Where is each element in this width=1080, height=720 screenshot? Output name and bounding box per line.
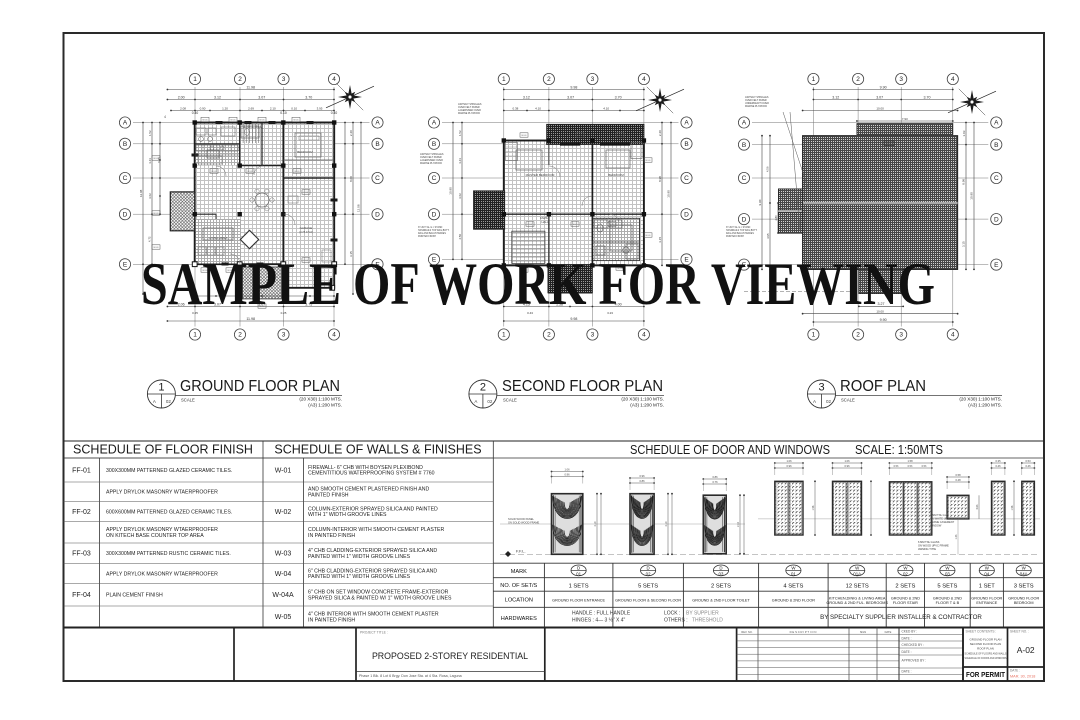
svg-text:600X600MM PATTERNED GLAZED CER: 600X600MM PATTERNED GLAZED CERAMIC TILES… [106, 509, 232, 515]
svg-text:C: C [994, 175, 999, 182]
svg-text:3 SETS: 3 SETS [1014, 584, 1034, 590]
svg-text:FOR PERMIT: FOR PERMIT [966, 670, 1006, 679]
svg-text:3.43: 3.43 [148, 158, 152, 164]
svg-text:3: 3 [282, 332, 286, 339]
svg-text:A: A [994, 120, 999, 127]
svg-text:ROOF PLAN: ROOF PLAN [977, 647, 994, 651]
svg-text:DATE :: DATE : [902, 637, 912, 641]
svg-text:W-01: W-01 [153, 213, 159, 215]
svg-text:HALL: HALL [542, 220, 549, 224]
svg-text:1: 1 [193, 76, 197, 83]
svg-text:03: 03 [719, 571, 724, 576]
svg-text:10.90: 10.90 [449, 187, 453, 195]
svg-text:D E S C R I P T I O N: D E S C R I P T I O N [790, 630, 817, 634]
svg-text:D: D [719, 565, 722, 570]
svg-text:LIVING AREA: LIVING AREA [209, 236, 228, 240]
svg-text:4.50: 4.50 [458, 234, 462, 240]
svg-text:C: C [123, 175, 128, 182]
svg-text:(20 X30) 1:100 MTS.: (20 X30) 1:100 MTS. [621, 397, 664, 402]
svg-text:3: 3 [899, 76, 903, 83]
svg-text:1: 1 [502, 332, 506, 339]
svg-text:GROUND FLOOR & SECOND FLOOR: GROUND FLOOR & SECOND FLOOR [615, 598, 681, 602]
svg-text:A: A [474, 399, 477, 404]
svg-text:D: D [684, 211, 689, 218]
svg-text:1: 1 [502, 76, 506, 83]
svg-text:LOCK :: LOCK : [664, 611, 680, 617]
svg-text:2: 2 [238, 332, 242, 339]
svg-text:RAIL AND BALUSTRADES: RAIL AND BALUSTRADES [726, 232, 754, 235]
svg-text:FF-02: FF-02 [72, 509, 91, 516]
svg-text:0.86: 0.86 [712, 475, 718, 479]
svg-text:GROUND & 2ND FUL. BEDROOMS: GROUND & 2ND FUL. BEDROOMS [826, 601, 888, 605]
svg-text:NO. OF SET/S: NO. OF SET/S [500, 583, 537, 589]
svg-text:3: 3 [818, 382, 824, 394]
svg-text:4: 4 [164, 115, 166, 119]
svg-text:RAIL AND BALUSTRADES: RAIL AND BALUSTRADES [418, 232, 446, 235]
svg-text:HANDRAILS TOP RAIL,BOTT.: HANDRAILS TOP RAIL,BOTT. [726, 229, 758, 232]
svg-text:2.08: 2.08 [180, 106, 186, 110]
svg-text:W-01: W-01 [211, 171, 217, 173]
svg-text:PAINTED FINISH: PAINTED FINISH [726, 235, 744, 238]
svg-text:GARAGE: GARAGE [300, 226, 313, 230]
svg-text:A: A [123, 120, 128, 127]
svg-text:9.98: 9.98 [570, 85, 577, 89]
svg-text:12 SETS: 12 SETS [846, 584, 869, 590]
svg-text:GROUND & 2ND: GROUND & 2ND [933, 596, 962, 600]
svg-text:(20 X30) 1:100 MTS.: (20 X30) 1:100 MTS. [959, 397, 1002, 402]
svg-text:GROUND & 2ND: GROUND & 2ND [891, 596, 920, 600]
svg-text:4.10: 4.10 [603, 106, 609, 110]
svg-text:6 MM TNL GLASS: 6 MM TNL GLASS [918, 540, 940, 544]
svg-text:4.72: 4.72 [148, 236, 152, 242]
svg-text:3Y 2M T.AL G.I. STAND: 3Y 2M T.AL G.I. STAND [418, 226, 443, 229]
svg-text:DATE: DATE [885, 630, 892, 634]
svg-text:B: B [994, 142, 998, 149]
svg-text:4.95: 4.95 [766, 233, 770, 239]
svg-text:02: 02 [646, 571, 651, 576]
svg-text:IN PAINTED FINISH: IN PAINTED FINISH [308, 533, 355, 539]
svg-text:1.52: 1.52 [458, 130, 462, 136]
svg-text:1.58: 1.58 [907, 459, 913, 463]
svg-text:01: 01 [576, 571, 581, 576]
svg-text:DATE :: DATE : [1010, 669, 1020, 673]
svg-text:SCALE: SCALE [503, 398, 517, 403]
svg-text:3.95: 3.95 [317, 106, 323, 110]
svg-text:0.35: 0.35 [995, 459, 1001, 463]
svg-text:1 SET: 1 SET [979, 584, 996, 590]
svg-text:1.06: 1.06 [564, 468, 570, 472]
svg-text:BEDROOM: BEDROOM [1014, 601, 1034, 605]
svg-text:CHECKED BY :: CHECKED BY : [902, 643, 925, 647]
svg-text:AWNING TYPE: AWNING TYPE [918, 547, 936, 551]
svg-text:HINGES : 4— 3 ½" X 4": HINGES : 4— 3 ½" X 4" [572, 617, 626, 624]
svg-text:SCHEDULE OF FLOOR FINISH: SCHEDULE OF FLOOR FINISH [73, 443, 253, 457]
svg-text:D: D [432, 211, 437, 218]
svg-text:W-01: W-01 [617, 135, 623, 137]
svg-text:ENTRANCE: ENTRANCE [976, 601, 997, 605]
svg-text:FLOOR STAIR: FLOOR STAIR [893, 601, 918, 605]
svg-text:MAR. 30, 2018: MAR. 30, 2018 [1010, 675, 1035, 679]
svg-text:A: A [813, 399, 816, 404]
svg-text:2.10: 2.10 [665, 521, 668, 526]
svg-text:9.90: 9.90 [880, 85, 887, 89]
svg-text:W-01: W-01 [202, 120, 208, 122]
svg-text:3.12: 3.12 [523, 95, 530, 99]
svg-text:8.98: 8.98 [658, 176, 662, 182]
svg-text:300X300MM PATTERNED GLAZED CER: 300X300MM PATTERNED GLAZED CERAMIC TILES… [106, 468, 232, 474]
svg-text:W-01: W-01 [645, 160, 651, 162]
svg-text:3Y 2M T.AL G.I. STAND: 3Y 2M T.AL G.I. STAND [726, 226, 751, 229]
svg-text:1.06: 1.06 [844, 459, 850, 463]
svg-text:4.10: 4.10 [535, 106, 541, 110]
svg-text:SOLID WOOD PANEL: SOLID WOOD PANEL [508, 517, 534, 521]
svg-text:04: 04 [984, 571, 989, 576]
svg-text:9.90: 9.90 [880, 318, 887, 322]
svg-text:D: D [123, 211, 128, 218]
svg-text:01A: 01A [853, 571, 861, 576]
svg-text:W-01: W-01 [293, 120, 299, 122]
svg-text:W-01: W-01 [303, 192, 309, 194]
svg-text:D: D [994, 216, 999, 223]
svg-text:3.43: 3.43 [458, 158, 462, 164]
svg-text:OTHERS :: OTHERS : [664, 618, 688, 624]
svg-text:FLOOR T & B: FLOOR T & B [936, 601, 960, 605]
svg-text:4 SETS: 4 SETS [783, 584, 803, 590]
svg-text:0.46: 0.46 [1025, 464, 1031, 468]
svg-text:2.69: 2.69 [248, 106, 254, 110]
svg-text:APPLY DRYLOK MASONRY WTAERPROO: APPLY DRYLOK MASONRY WTAERPROOFER [106, 490, 218, 496]
svg-text:GROUND FLOOR: GROUND FLOOR [971, 596, 1002, 600]
svg-text:0.96: 0.96 [564, 473, 570, 477]
svg-text:0.96: 0.96 [639, 474, 645, 478]
svg-text:A: A [432, 120, 437, 127]
svg-text:HANDRAILS TOP RAIL,BOTT.: HANDRAILS TOP RAIL,BOTT. [418, 229, 450, 232]
svg-text:1.06: 1.06 [786, 459, 792, 463]
svg-text:W-01: W-01 [527, 224, 533, 226]
svg-text:4: 4 [642, 76, 646, 83]
svg-text:LOCATION: LOCATION [505, 598, 533, 604]
svg-text:SAMPLE OF WORK FOR VIEWING: SAMPLE OF WORK FOR VIEWING [141, 251, 935, 317]
svg-text:GROUND FLOOR PLAN: GROUND FLOOR PLAN [970, 638, 1002, 642]
svg-text:SCALE: 1:50MTS: SCALE: 1:50MTS [855, 443, 943, 457]
svg-text:8.00: 8.00 [349, 176, 353, 182]
svg-text:2: 2 [547, 76, 551, 83]
svg-text:W-01: W-01 [230, 120, 236, 122]
svg-text:(2.75 X 5.0): (2.75 X 5.0) [299, 230, 313, 234]
svg-text:D: D [375, 211, 380, 218]
svg-text:0.53: 0.53 [908, 465, 913, 468]
svg-text:GROUND & 2ND FLOOR: GROUND & 2ND FLOOR [772, 598, 816, 602]
svg-text:3.07: 3.07 [567, 95, 574, 99]
svg-text:3: 3 [591, 76, 595, 83]
svg-text:C: C [432, 175, 437, 182]
svg-text:2 SETS: 2 SETS [711, 584, 731, 590]
svg-text:2.10: 2.10 [270, 106, 276, 110]
svg-text:HANDLE : FULL HANDLE: HANDLE : FULL HANDLE [572, 611, 631, 617]
svg-text:3.15: 3.15 [962, 241, 966, 247]
svg-text:ON SOLID WOOD FRAME: ON SOLID WOOD FRAME [508, 521, 540, 525]
svg-text:E: E [123, 262, 128, 269]
svg-text:FF-03: FF-03 [72, 551, 91, 558]
svg-text:3.15: 3.15 [658, 237, 662, 243]
svg-text:F.F.L.: F.F.L. [516, 549, 526, 554]
svg-text:0.53: 0.53 [894, 465, 899, 468]
svg-text:10.00: 10.00 [876, 106, 884, 110]
svg-text:(A3) 1:200 MTS.: (A3) 1:200 MTS. [968, 403, 1002, 408]
svg-text:GROUND & 2ND FLOOR TOILET: GROUND & 2ND FLOOR TOILET [692, 598, 750, 602]
svg-text:B: B [432, 141, 436, 148]
svg-text:FF-01: FF-01 [72, 467, 91, 474]
svg-text:W-03: W-03 [275, 551, 292, 558]
svg-text:4.56: 4.56 [766, 166, 770, 172]
svg-text:5 SETS: 5 SETS [937, 584, 957, 590]
svg-text:D: D [742, 216, 747, 223]
svg-text:W-01: W-01 [572, 224, 578, 226]
svg-text:04A: 04A [1020, 571, 1028, 576]
svg-text:0.40: 0.40 [192, 111, 199, 115]
svg-text:3.62: 3.62 [148, 193, 152, 199]
svg-text:SCHEDULE OF WALLS & FINISHES: SCHEDULE OF WALLS & FINISHES [274, 443, 481, 457]
svg-text:3.12: 3.12 [214, 95, 221, 99]
svg-text:PAINTED WITH 1" WIDTH GROOVE: PAINTED WITH 1" WIDTH GROOVE LINES [308, 574, 411, 580]
svg-text:PAINTED FINISH: PAINTED FINISH [418, 235, 436, 238]
svg-text:01: 01 [791, 571, 796, 576]
svg-text:3.07: 3.07 [876, 95, 883, 99]
svg-text:10.90: 10.90 [667, 190, 671, 198]
svg-text:2: 2 [856, 76, 860, 83]
svg-text:2.10: 2.10 [737, 522, 740, 527]
svg-text:3.07: 3.07 [258, 95, 265, 99]
svg-text:0.96: 0.96 [844, 464, 850, 468]
svg-text:CKED BY :: CKED BY : [902, 630, 918, 634]
svg-text:0.10: 0.10 [291, 106, 297, 110]
svg-text:1.20: 1.20 [222, 106, 228, 110]
svg-text:0.63: 0.63 [976, 504, 979, 509]
svg-text:02: 02 [903, 571, 908, 576]
svg-text:SECOND FLOOR PLAN: SECOND FLOOR PLAN [502, 378, 663, 395]
svg-text:4: 4 [332, 76, 336, 83]
svg-text:8.98: 8.98 [962, 179, 966, 185]
svg-text:(A3) 1:200 MTS.: (A3) 1:200 MTS. [308, 403, 342, 408]
svg-text:1: 1 [193, 332, 197, 339]
svg-text:W-01: W-01 [153, 247, 159, 249]
svg-text:10.90: 10.90 [970, 192, 974, 200]
svg-text:W-05: W-05 [275, 614, 292, 621]
svg-text:0.10: 0.10 [280, 111, 287, 115]
svg-text:C: C [375, 175, 380, 182]
svg-text:1: 1 [158, 382, 164, 394]
svg-text:FF-04: FF-04 [72, 592, 91, 599]
svg-text:E: E [994, 262, 999, 269]
svg-text:2.10: 2.10 [594, 521, 597, 526]
svg-text:0.40: 0.40 [331, 111, 338, 115]
svg-text:W-01: W-01 [294, 171, 300, 173]
svg-text:GROUND FLOOR PLAN: GROUND FLOOR PLAN [180, 378, 340, 395]
svg-text:IN PAINTED FINISH: IN PAINTED FINISH [308, 617, 355, 623]
svg-text:4: 4 [951, 76, 955, 83]
svg-text:A: A [742, 120, 747, 127]
svg-text:11.98: 11.98 [246, 317, 255, 321]
svg-text:2: 2 [856, 332, 860, 339]
svg-text:(20 X30) 1:100 MTS.: (20 X30) 1:100 MTS. [299, 397, 342, 402]
svg-text:B: B [742, 142, 746, 149]
svg-text:W-04A: W-04A [272, 592, 294, 599]
svg-text:9.98: 9.98 [570, 317, 577, 321]
svg-text:SPRAYED SILICA & PAINTED W/ 1: SPRAYED SILICA & PAINTED W/ 1" WIDTH GRO… [308, 595, 452, 601]
svg-text:(A3) 1:200 MTS.: (A3) 1:200 MTS. [630, 403, 664, 408]
svg-text:PROJECT TITLE :: PROJECT TITLE : [360, 631, 388, 635]
svg-text:W-01: W-01 [577, 135, 583, 137]
svg-text:DATE :: DATE : [902, 650, 912, 654]
svg-text:W-01: W-01 [645, 235, 651, 237]
svg-text:W-01: W-01 [609, 224, 615, 226]
svg-text:SHEET NO. :: SHEET NO. : [1010, 630, 1029, 634]
svg-text:SCHEDULE OF FLOORS AND WALLS: SCHEDULE OF FLOORS AND WALLS [965, 651, 1007, 655]
svg-text:12.08: 12.08 [357, 204, 361, 212]
svg-text:ROOF PLAN: ROOF PLAN [840, 378, 926, 395]
svg-text:SCHEDULE OF DOORS AND WINDOWS: SCHEDULE OF DOORS AND WINDOWS [965, 656, 1007, 660]
svg-text:0.58: 0.58 [955, 473, 961, 477]
svg-text:MARINE PLYWOOD: MARINE PLYWOOD [745, 105, 767, 108]
svg-text:0.96: 0.96 [786, 464, 792, 468]
svg-text:300X300MM PATTERNED RUSTIC CER: 300X300MM PATTERNED RUSTIC CERAMIC TILES… [106, 551, 231, 557]
svg-text:2.80: 2.80 [774, 215, 778, 221]
svg-text:3.70: 3.70 [615, 95, 622, 99]
svg-text:0.90: 0.90 [200, 106, 206, 110]
svg-text:3.70: 3.70 [305, 95, 312, 99]
svg-text:2 SETS: 2 SETS [895, 584, 915, 590]
svg-text:GROUND FLOOR: GROUND FLOOR [1008, 596, 1039, 600]
svg-text:D: D [577, 565, 580, 570]
svg-text:SCHEDULE OF DOOR AND WINDOWS: SCHEDULE OF DOOR AND WINDOWS [630, 443, 830, 457]
svg-text:02: 02 [166, 399, 172, 404]
svg-text:MASTER BEDROOM: MASTER BEDROOM [526, 173, 555, 177]
svg-text:BEDROOM: BEDROOM [608, 173, 624, 177]
svg-text:3: 3 [282, 76, 286, 83]
svg-text:W-02: W-02 [275, 509, 292, 516]
svg-text:3.70: 3.70 [924, 95, 931, 99]
svg-text:ON KITECH BASE COUNTER TOP ARE: ON KITECH BASE COUNTER TOP AREA [106, 533, 204, 539]
svg-text:MARK: MARK [511, 569, 527, 575]
svg-text:7.93: 7.93 [902, 117, 908, 121]
svg-text:PROPOSED 2-STOREY RESIDENTIAL: PROPOSED 2-STOREY RESIDENTIAL [372, 651, 528, 661]
svg-text:2: 2 [480, 382, 486, 394]
svg-text:THRESHOLD: THRESHOLD [692, 618, 723, 624]
svg-text:A-02: A-02 [1017, 645, 1035, 655]
svg-text:C: C [684, 175, 689, 182]
svg-text:W-01: W-01 [259, 120, 265, 122]
svg-text:ON WOOD UPVC FRAME: ON WOOD UPVC FRAME [918, 544, 949, 548]
svg-text:11.98: 11.98 [246, 85, 255, 89]
svg-text:B: B [123, 141, 127, 148]
svg-text:FRAME CASEMENT: FRAME CASEMENT [930, 520, 955, 524]
svg-text:02: 02 [487, 399, 493, 404]
svg-text:2.00: 2.00 [178, 95, 185, 99]
svg-text:SIGN: SIGN [860, 630, 866, 634]
svg-text:DATE :: DATE : [902, 670, 912, 674]
svg-text:9.90: 9.90 [758, 199, 762, 205]
svg-text:2: 2 [547, 332, 551, 339]
svg-text:WITH 1" WIDTH GROOVE LINES: WITH 1" WIDTH GROOVE LINES [308, 512, 387, 518]
svg-text:2: 2 [238, 76, 242, 83]
svg-text:A: A [375, 120, 380, 127]
svg-text:0.86: 0.86 [639, 479, 645, 483]
svg-text:KITCHEN,DINIG & LIVING AREA: KITCHEN,DINIG & LIVING AREA [829, 596, 886, 600]
svg-text:W-01: W-01 [247, 171, 253, 173]
svg-text:3.12: 3.12 [832, 95, 839, 99]
svg-text:4: 4 [642, 332, 646, 339]
svg-text:BY SPECIALTY SUPPLIER INSTALLE: BY SPECIALTY SUPPLIER INSTALLER & CONTRA… [820, 614, 982, 621]
svg-text:APPLY DRYLOK MASONRY WTAERPROO: APPLY DRYLOK MASONRY WTAERPROOFER [106, 571, 218, 577]
svg-text:C: C [742, 175, 747, 182]
svg-text:1.33: 1.33 [955, 534, 958, 539]
svg-text:1: 1 [812, 76, 816, 83]
svg-text:2.40: 2.40 [658, 130, 662, 136]
svg-text:1.58: 1.58 [812, 505, 815, 510]
svg-text:03: 03 [945, 571, 950, 576]
svg-text:W-01: W-01 [521, 135, 527, 137]
svg-text:02: 02 [826, 399, 832, 404]
svg-text:3.62: 3.62 [458, 193, 462, 199]
svg-text:SCALE: SCALE [841, 398, 855, 403]
svg-text:SHEET CONTENTS :: SHEET CONTENTS : [966, 630, 997, 634]
svg-text:HARDWARES: HARDWARES [501, 616, 537, 622]
svg-text:B: B [684, 141, 688, 148]
svg-text:12.08: 12.08 [139, 189, 143, 197]
svg-text:PAINTED WITH 1" WIDTH GROOVE: PAINTED WITH 1" WIDTH GROOVE LINES [308, 554, 411, 560]
svg-text:1.03: 1.03 [962, 130, 966, 136]
svg-text:1 SETS: 1 SETS [569, 584, 589, 590]
svg-text:3: 3 [591, 332, 595, 339]
svg-text:APPROVED BY :: APPROVED BY : [902, 659, 927, 663]
svg-text:0.38: 0.38 [512, 106, 518, 110]
svg-text:REV. NO.: REV. NO. [741, 630, 752, 634]
svg-text:A: A [684, 120, 689, 127]
svg-text:GROUND FLOOR ENTRANCE: GROUND FLOOR ENTRANCE [552, 598, 605, 602]
svg-text:W-01: W-01 [153, 158, 159, 160]
svg-text:5 SETS: 5 SETS [638, 584, 658, 590]
svg-text:PLAIN CEMENT FINISH: PLAIN CEMENT FINISH [106, 593, 163, 599]
svg-text:2.40: 2.40 [349, 130, 353, 136]
svg-text:PAINTED FINISH: PAINTED FINISH [308, 492, 349, 498]
svg-text:A: A [153, 399, 156, 404]
svg-text:4: 4 [332, 332, 336, 339]
svg-text:Phase 1 Blk. 8 Lot 6 Brgy. Don: Phase 1 Blk. 8 Lot 6 Brgy. Don Jose Sta.… [359, 674, 462, 678]
svg-text:D: D [647, 565, 650, 570]
svg-text:B: B [375, 141, 379, 148]
svg-text:1.58: 1.58 [1011, 505, 1014, 510]
svg-text:0.76: 0.76 [712, 480, 718, 484]
svg-text:MARINE PLYWOOD: MARINE PLYWOOD [420, 162, 442, 165]
svg-text:3: 3 [899, 332, 903, 339]
svg-text:0.53: 0.53 [922, 465, 927, 468]
svg-text:BEDROOM: BEDROOM [297, 150, 313, 154]
svg-text:4: 4 [951, 332, 955, 339]
svg-text:CEMENTITIOUS WATERPROOFING SYS: CEMENTITIOUS WATERPROOFING SYSTEM # 7760 [308, 471, 435, 477]
svg-text:MARINE PLYWOOD: MARINE PLYWOOD [458, 112, 480, 115]
svg-text:W-04: W-04 [275, 571, 292, 578]
svg-text:SCALE: SCALE [181, 398, 195, 403]
svg-text:0.46: 0.46 [995, 464, 1001, 468]
svg-text:1: 1 [812, 332, 816, 339]
svg-text:BY SUPPLIER: BY SUPPLIER [686, 611, 719, 617]
svg-text:W-01: W-01 [275, 467, 292, 474]
svg-text:0.53: 0.53 [1025, 459, 1031, 463]
svg-text:1.52: 1.52 [148, 130, 152, 136]
svg-text:SECOND FLOOR PLAN: SECOND FLOOR PLAN [970, 642, 1001, 646]
svg-text:0.48: 0.48 [955, 478, 961, 482]
